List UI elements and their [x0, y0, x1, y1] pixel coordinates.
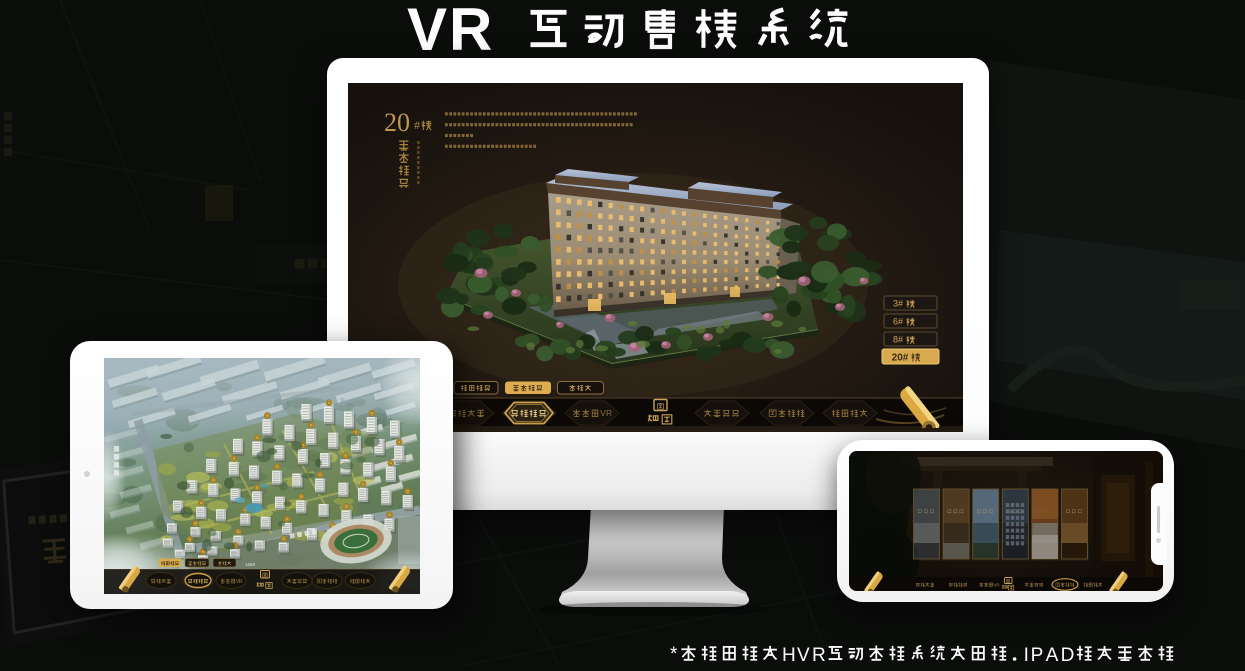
svg-text:20: 20 [384, 108, 410, 137]
svg-text:R: R [239, 579, 243, 585]
svg-text:R: R [996, 582, 1000, 588]
svg-text:R: R [812, 645, 826, 666]
svg-text:D: D [1061, 645, 1075, 666]
svg-text:20#: 20# [892, 353, 909, 364]
svg-text:6#: 6# [893, 317, 903, 327]
svg-text:I: I [1024, 645, 1029, 666]
svg-text:8#: 8# [893, 335, 903, 345]
svg-text:3#: 3# [893, 299, 903, 309]
svg-text:P: P [1031, 645, 1044, 666]
svg-text:R: R [606, 408, 612, 418]
svg-text:1568: 1568 [245, 562, 256, 567]
svg-text:H: H [782, 645, 796, 666]
svg-text:V: V [797, 645, 810, 666]
svg-text:*: * [670, 644, 678, 665]
svg-text:#: # [414, 118, 420, 132]
svg-text:A: A [1046, 645, 1059, 666]
